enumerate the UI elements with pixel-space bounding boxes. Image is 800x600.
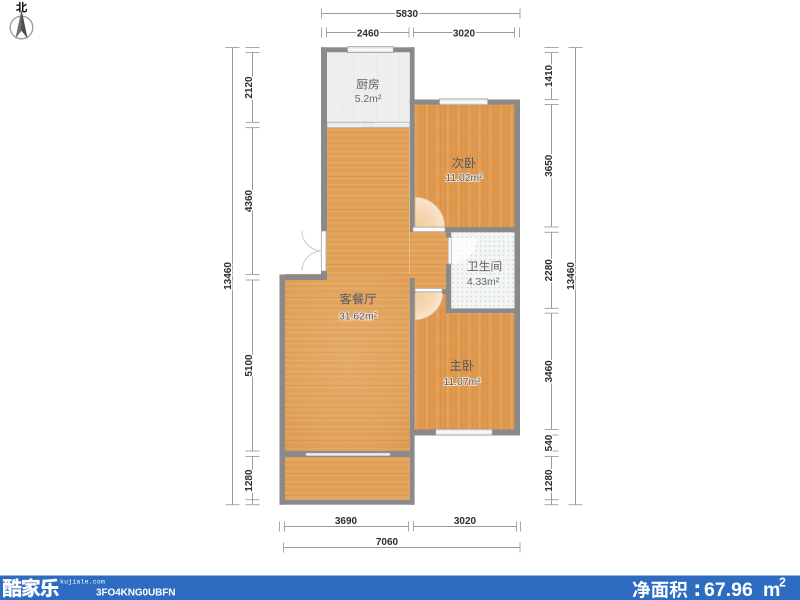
svg-text:67.96: 67.96 [704,579,753,600]
svg-text:kujiale.com: kujiale.com [60,579,105,586]
svg-text:2: 2 [779,576,786,590]
svg-text:3690: 3690 [335,516,358,527]
svg-text:2280: 2280 [544,259,555,282]
svg-text:2460: 2460 [357,29,380,40]
svg-text:540: 540 [544,434,555,451]
svg-text:7060: 7060 [376,537,399,548]
svg-text:1280: 1280 [244,469,255,492]
svg-text:1280: 1280 [544,469,555,492]
svg-text:31.62m²: 31.62m² [339,312,378,323]
svg-text:5100: 5100 [244,354,255,377]
svg-text:13460: 13460 [223,262,234,290]
svg-text:11.02m²: 11.02m² [445,173,483,184]
svg-text:5830: 5830 [396,9,419,20]
svg-text:3650: 3650 [544,154,555,177]
svg-text:3020: 3020 [453,29,476,40]
svg-text:3460: 3460 [544,360,555,383]
svg-text:4.33m²: 4.33m² [467,277,500,288]
svg-text:13460: 13460 [566,262,577,290]
svg-text:11.07m²: 11.07m² [443,377,481,388]
svg-text:m: m [763,579,780,600]
svg-text:3FO4KNG0UBFN: 3FO4KNG0UBFN [96,588,175,599]
svg-text:4360: 4360 [244,189,255,212]
svg-text:5.2m²: 5.2m² [355,94,382,105]
svg-text:2120: 2120 [244,76,255,99]
svg-text:1410: 1410 [544,64,555,87]
svg-text:3020: 3020 [454,516,477,527]
